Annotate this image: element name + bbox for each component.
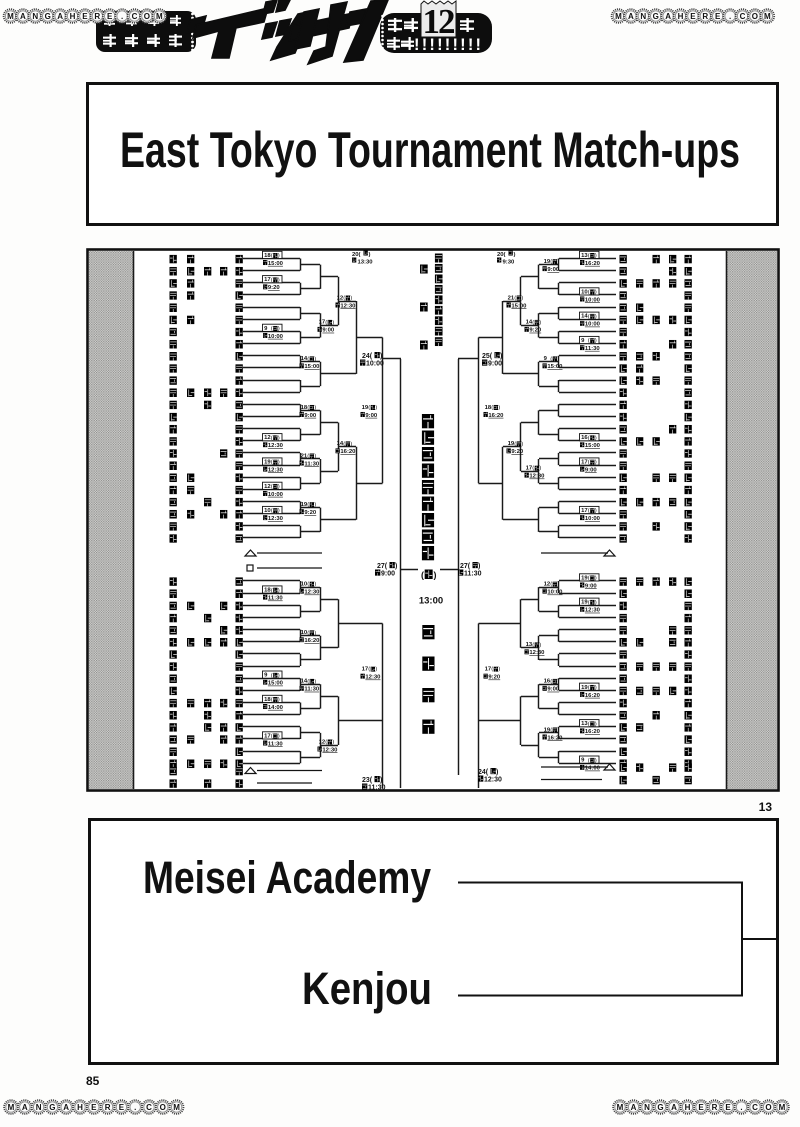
svg-text:): ) — [595, 290, 597, 296]
svg-text:): ) — [375, 405, 377, 411]
svg-text:H: H — [77, 1103, 83, 1112]
svg-text:E: E — [82, 12, 88, 21]
svg-text:G: G — [49, 1103, 55, 1112]
svg-text:): ) — [595, 721, 597, 727]
svg-text:): ) — [369, 252, 371, 258]
svg-text:): ) — [278, 484, 280, 490]
svg-text:(: ( — [307, 454, 309, 460]
svg-text:M: M — [7, 12, 14, 21]
svg-text:E: E — [715, 12, 721, 21]
svg-text:(: ( — [271, 253, 273, 259]
svg-text:G: G — [657, 1103, 663, 1112]
svg-text:12:30: 12:30 — [529, 474, 545, 480]
svg-text:11:30: 11:30 — [268, 741, 283, 747]
svg-text:): ) — [278, 277, 280, 283]
svg-text:Meisei Academy: Meisei Academy — [143, 852, 431, 903]
svg-text:23(: 23( — [362, 777, 373, 784]
svg-text:12:30: 12:30 — [340, 303, 356, 309]
svg-text:11:30: 11:30 — [368, 785, 386, 792]
svg-text:): ) — [434, 570, 437, 580]
svg-text:12:30: 12:30 — [268, 467, 284, 473]
svg-text:): ) — [478, 563, 480, 570]
svg-text:(: ( — [271, 435, 273, 441]
svg-text:(: ( — [532, 320, 534, 326]
svg-text:): ) — [314, 356, 316, 362]
svg-text:(: ( — [550, 259, 552, 265]
svg-text:E: E — [119, 1103, 125, 1112]
svg-text:12:30: 12:30 — [268, 443, 284, 449]
svg-text:): ) — [278, 460, 280, 466]
svg-text:14:00: 14:00 — [268, 705, 284, 711]
svg-text:(: ( — [325, 740, 327, 746]
svg-text:): ) — [595, 435, 597, 441]
svg-text:9:20: 9:20 — [488, 675, 501, 681]
svg-text:G: G — [45, 12, 51, 21]
svg-text:): ) — [557, 259, 559, 265]
svg-text:(: ( — [532, 466, 534, 472]
svg-text:16:20: 16:20 — [585, 693, 601, 699]
svg-text:): ) — [557, 728, 559, 734]
svg-text:A: A — [22, 1103, 28, 1112]
svg-text:16:20: 16:20 — [304, 638, 320, 644]
svg-text:H: H — [678, 12, 684, 21]
svg-text:C: C — [132, 12, 138, 21]
svg-text:9:00: 9:00 — [304, 413, 317, 419]
svg-text:M: M — [764, 12, 771, 21]
svg-text:10:00: 10:00 — [547, 590, 563, 596]
svg-text:A: A — [665, 12, 671, 21]
svg-text:M: M — [156, 12, 163, 21]
svg-text:(: ( — [271, 460, 273, 466]
svg-text:15:00: 15:00 — [304, 364, 320, 370]
svg-text:): ) — [539, 642, 541, 648]
svg-text:12:30: 12:30 — [268, 516, 284, 522]
svg-text:9:30: 9:30 — [503, 260, 516, 266]
svg-text:R: R — [712, 1103, 718, 1112]
svg-text:(: ( — [588, 253, 590, 259]
svg-text:15:00: 15:00 — [268, 261, 284, 267]
svg-text:.: . — [729, 12, 731, 21]
svg-text:): ) — [595, 338, 597, 344]
svg-text:(: ( — [588, 721, 590, 727]
svg-text:(: ( — [588, 758, 590, 764]
svg-text:12:30: 12:30 — [365, 675, 381, 681]
svg-text:N: N — [32, 12, 38, 21]
svg-text:O: O — [765, 1103, 771, 1112]
svg-text:C: C — [146, 1103, 152, 1112]
svg-text:11:30: 11:30 — [585, 346, 600, 352]
svg-text:12:30: 12:30 — [585, 608, 601, 614]
svg-text:): ) — [496, 769, 498, 776]
svg-text:(: ( — [307, 502, 309, 508]
svg-text:20(: 20( — [352, 252, 361, 258]
svg-text:): ) — [314, 502, 316, 508]
svg-text:): ) — [498, 667, 500, 673]
svg-text:): ) — [380, 777, 382, 784]
svg-text:(: ( — [550, 582, 552, 588]
svg-text:): ) — [314, 454, 316, 460]
svg-text:): ) — [514, 252, 516, 258]
svg-text:15:00: 15:00 — [547, 364, 563, 370]
svg-text:H: H — [685, 1103, 691, 1112]
svg-text:O: O — [752, 12, 758, 21]
svg-text:12:30: 12:30 — [529, 650, 545, 656]
svg-text:(: ( — [588, 508, 590, 514]
svg-text:(: ( — [588, 460, 590, 466]
svg-text:): ) — [350, 296, 352, 302]
svg-text:9:00: 9:00 — [488, 361, 502, 368]
svg-text:): ) — [521, 296, 523, 302]
svg-text:): ) — [595, 460, 597, 466]
svg-text:): ) — [595, 314, 597, 320]
svg-text:): ) — [595, 508, 597, 514]
svg-text:): ) — [332, 320, 334, 326]
svg-text:A: A — [63, 1103, 69, 1112]
svg-text:13:00: 13:00 — [419, 596, 443, 607]
svg-text:): ) — [278, 673, 280, 679]
svg-text:(: ( — [588, 314, 590, 320]
svg-text:R: R — [94, 12, 100, 21]
svg-text:M: M — [615, 12, 622, 21]
svg-text:E: E — [690, 12, 696, 21]
svg-text:.: . — [740, 1103, 742, 1112]
svg-text:): ) — [498, 405, 500, 411]
svg-text:11:30: 11:30 — [268, 596, 283, 602]
svg-text:O: O — [144, 12, 150, 21]
svg-text:E: E — [91, 1103, 97, 1112]
svg-text:12:30: 12:30 — [304, 590, 320, 596]
svg-text:): ) — [521, 441, 523, 447]
svg-text:(: ( — [271, 734, 273, 740]
svg-text:(: ( — [550, 356, 552, 362]
svg-text:): ) — [314, 630, 316, 636]
svg-text:.: . — [134, 1103, 136, 1112]
svg-text:M: M — [617, 1103, 624, 1112]
svg-text:N: N — [640, 12, 646, 21]
svg-text:(: ( — [491, 405, 493, 411]
svg-text:11:30: 11:30 — [304, 461, 319, 467]
svg-text:R: R — [702, 12, 708, 21]
svg-text:!!!!!!!!!: !!!!!!!!! — [414, 36, 483, 54]
svg-text:East Tokyo Tournament Match-up: East Tokyo Tournament Match-ups — [120, 122, 740, 178]
svg-text:A: A — [628, 12, 634, 21]
svg-text:9:00: 9:00 — [322, 328, 335, 334]
svg-text:): ) — [595, 576, 597, 582]
svg-text:(: ( — [271, 673, 273, 679]
svg-text:H: H — [70, 12, 76, 21]
svg-text:A: A — [57, 12, 63, 21]
svg-text:): ) — [500, 353, 502, 360]
svg-text:9:20: 9:20 — [304, 510, 317, 516]
svg-text:Kenjou: Kenjou — [302, 963, 432, 1014]
svg-text:.: . — [121, 12, 123, 21]
svg-text:9:00: 9:00 — [365, 413, 378, 419]
svg-text:(: ( — [307, 679, 309, 685]
svg-text:16:20: 16:20 — [585, 729, 601, 735]
svg-text:): ) — [557, 582, 559, 588]
svg-text:(: ( — [325, 320, 327, 326]
svg-text:15:00: 15:00 — [268, 681, 284, 687]
svg-text:C: C — [752, 1103, 758, 1112]
svg-text:(: ( — [307, 356, 309, 362]
svg-text:(: ( — [550, 728, 552, 734]
svg-text:12:30: 12:30 — [484, 777, 502, 784]
svg-text:(: ( — [343, 296, 345, 302]
svg-text:(: ( — [271, 484, 273, 490]
svg-text:9:20: 9:20 — [268, 285, 281, 291]
svg-text:E: E — [725, 1103, 731, 1112]
svg-text:(: ( — [491, 667, 493, 673]
svg-text:15:00: 15:00 — [585, 443, 601, 449]
svg-text:9:00: 9:00 — [585, 583, 598, 589]
svg-text:10:00: 10:00 — [585, 297, 601, 303]
svg-text:): ) — [595, 600, 597, 606]
svg-text:10:00: 10:00 — [268, 492, 284, 498]
svg-text:(: ( — [307, 582, 309, 588]
svg-text:A: A — [20, 12, 26, 21]
svg-text:(: ( — [271, 697, 273, 703]
svg-text:): ) — [278, 734, 280, 740]
svg-text:9:00: 9:00 — [381, 571, 395, 578]
svg-text:): ) — [539, 320, 541, 326]
svg-text:M: M — [8, 1103, 15, 1112]
svg-text:): ) — [557, 679, 559, 685]
svg-text:(: ( — [588, 600, 590, 606]
svg-text:16:20: 16:20 — [585, 261, 601, 267]
svg-text:24(: 24( — [362, 353, 373, 360]
svg-text:(: ( — [588, 685, 590, 691]
svg-text:85: 85 — [86, 1074, 100, 1088]
svg-text:11:30: 11:30 — [304, 687, 319, 693]
svg-text:16:20: 16:20 — [488, 413, 504, 419]
svg-text:(: ( — [307, 405, 309, 411]
svg-text:O: O — [160, 1103, 166, 1112]
svg-text:C: C — [740, 12, 746, 21]
svg-text:): ) — [278, 588, 280, 594]
svg-text:24(: 24( — [478, 769, 489, 776]
svg-text:(: ( — [514, 441, 516, 447]
svg-text:): ) — [380, 353, 382, 360]
svg-text:(: ( — [421, 570, 424, 580]
svg-text:A: A — [671, 1103, 677, 1112]
svg-text:10:00: 10:00 — [585, 516, 601, 522]
svg-text:A: A — [631, 1103, 637, 1112]
svg-text:): ) — [375, 667, 377, 673]
svg-text:): ) — [557, 356, 559, 362]
svg-text:N: N — [36, 1103, 42, 1112]
svg-text:M: M — [779, 1103, 786, 1112]
svg-text:9:20: 9:20 — [529, 328, 542, 334]
svg-text:10:00: 10:00 — [585, 322, 601, 328]
svg-text:13:30: 13:30 — [358, 260, 374, 266]
svg-text:E: E — [698, 1103, 704, 1112]
svg-text:): ) — [314, 582, 316, 588]
svg-text:9:00: 9:00 — [547, 267, 560, 273]
svg-text:20(: 20( — [497, 252, 506, 258]
svg-text:15:00: 15:00 — [511, 303, 527, 309]
svg-text:(: ( — [588, 290, 590, 296]
svg-text:(: ( — [588, 338, 590, 344]
svg-text:(: ( — [588, 435, 590, 441]
svg-text:): ) — [350, 441, 352, 447]
svg-text:(: ( — [343, 441, 345, 447]
svg-text:16:20: 16:20 — [547, 735, 563, 741]
svg-text:25(: 25( — [482, 353, 493, 360]
svg-text:): ) — [314, 405, 316, 411]
svg-text:G: G — [653, 12, 659, 21]
svg-text:): ) — [278, 508, 280, 514]
svg-text:): ) — [278, 697, 280, 703]
svg-text:N: N — [644, 1103, 650, 1112]
svg-text:): ) — [539, 466, 541, 472]
svg-text:): ) — [332, 740, 334, 746]
svg-text:(: ( — [271, 326, 273, 332]
svg-text:(: ( — [307, 630, 309, 636]
svg-text:): ) — [314, 679, 316, 685]
svg-text:(: ( — [550, 679, 552, 685]
svg-text:9:20: 9:20 — [511, 449, 524, 455]
svg-text:(: ( — [271, 277, 273, 283]
svg-text:): ) — [395, 563, 397, 570]
svg-text:16:20: 16:20 — [340, 449, 356, 455]
svg-text:27(: 27( — [460, 563, 471, 570]
svg-text:(: ( — [368, 405, 370, 411]
svg-text:): ) — [595, 253, 597, 259]
svg-text:9:00: 9:00 — [585, 467, 598, 473]
svg-text:M: M — [173, 1103, 180, 1112]
svg-text:27(: 27( — [377, 563, 388, 570]
svg-text:(: ( — [271, 588, 273, 594]
svg-text:11:30: 11:30 — [464, 571, 482, 578]
svg-text:E: E — [107, 12, 113, 21]
svg-text:(: ( — [514, 296, 516, 302]
svg-text:10:00: 10:00 — [268, 334, 284, 340]
svg-text:(: ( — [271, 508, 273, 514]
svg-text:): ) — [278, 326, 280, 332]
svg-text:): ) — [278, 435, 280, 441]
svg-text:12:30: 12:30 — [322, 747, 338, 753]
svg-text:9:00: 9:00 — [547, 687, 560, 693]
svg-text:): ) — [595, 758, 597, 764]
svg-text:10:00: 10:00 — [366, 361, 384, 368]
svg-text:R: R — [105, 1103, 111, 1112]
svg-text:(: ( — [588, 576, 590, 582]
svg-text:13: 13 — [759, 800, 773, 814]
svg-text:): ) — [595, 685, 597, 691]
svg-text:): ) — [278, 253, 280, 259]
svg-text:(: ( — [368, 667, 370, 673]
svg-text:(: ( — [532, 642, 534, 648]
